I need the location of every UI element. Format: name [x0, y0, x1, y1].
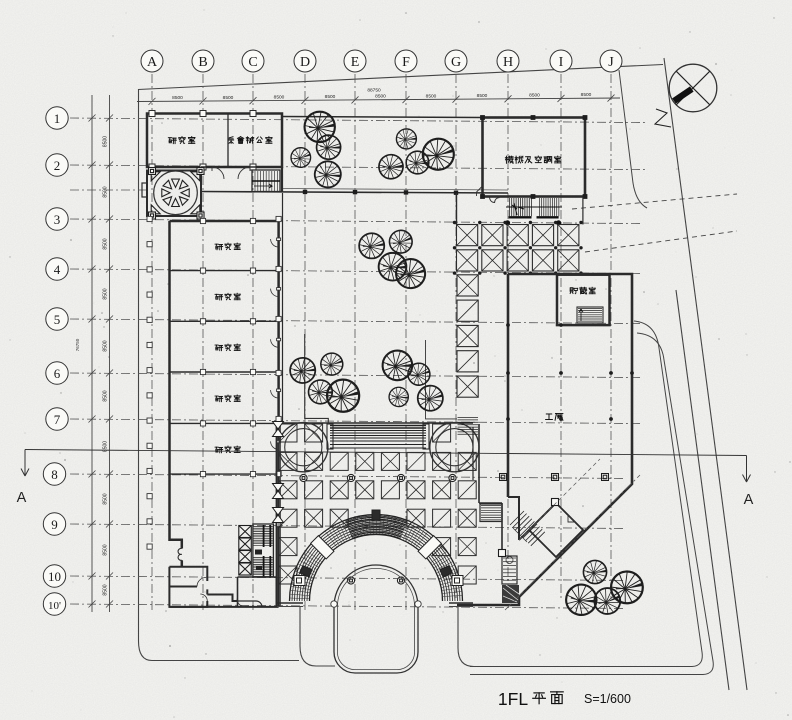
svg-text:F: F [402, 55, 410, 70]
svg-text:8500: 8500 [325, 94, 336, 100]
svg-text:7: 7 [54, 412, 61, 427]
svg-text:8500: 8500 [103, 340, 109, 351]
svg-text:A: A [744, 492, 754, 508]
svg-text:G: G [451, 55, 461, 70]
svg-text:2: 2 [54, 158, 61, 173]
svg-text:8500: 8500 [426, 93, 437, 99]
svg-text:1: 1 [54, 111, 61, 126]
svg-text:8500: 8500 [529, 93, 540, 99]
svg-text:A: A [17, 490, 27, 506]
svg-text:H: H [503, 55, 513, 70]
svg-text:5: 5 [54, 312, 61, 327]
svg-text:A: A [147, 55, 158, 70]
svg-text:8500: 8500 [103, 186, 109, 197]
svg-text:B: B [198, 55, 207, 70]
svg-text:8500: 8500 [274, 94, 285, 100]
svg-text:88750: 88750 [367, 88, 381, 94]
svg-text:8500: 8500 [103, 288, 109, 299]
svg-text:3: 3 [54, 212, 61, 227]
svg-text:8500: 8500 [172, 95, 183, 101]
svg-text:9: 9 [51, 517, 58, 532]
svg-text:10: 10 [48, 569, 61, 584]
svg-text:J: J [608, 55, 614, 70]
svg-text:8500: 8500 [103, 544, 109, 555]
svg-text:8500: 8500 [103, 390, 109, 401]
svg-text:E: E [351, 55, 360, 70]
svg-text:S=1/600: S=1/600 [584, 692, 631, 706]
svg-text:8: 8 [51, 467, 58, 482]
svg-text:8500: 8500 [103, 584, 109, 595]
svg-text:1FL: 1FL [498, 689, 528, 709]
svg-text:8500: 8500 [103, 238, 109, 249]
svg-text:8500: 8500 [223, 95, 234, 101]
svg-text:I: I [559, 55, 564, 70]
svg-text:D: D [300, 55, 310, 70]
svg-text:8500: 8500 [103, 493, 109, 504]
svg-text:10': 10' [48, 600, 61, 612]
svg-text:8500: 8500 [103, 136, 109, 147]
svg-text:8500: 8500 [581, 92, 592, 98]
svg-text:8500: 8500 [375, 94, 386, 100]
svg-text:6: 6 [54, 366, 61, 381]
svg-text:4: 4 [54, 262, 61, 277]
svg-text:8500: 8500 [477, 93, 488, 99]
svg-text:76750: 76750 [75, 338, 80, 351]
svg-text:C: C [248, 55, 257, 70]
